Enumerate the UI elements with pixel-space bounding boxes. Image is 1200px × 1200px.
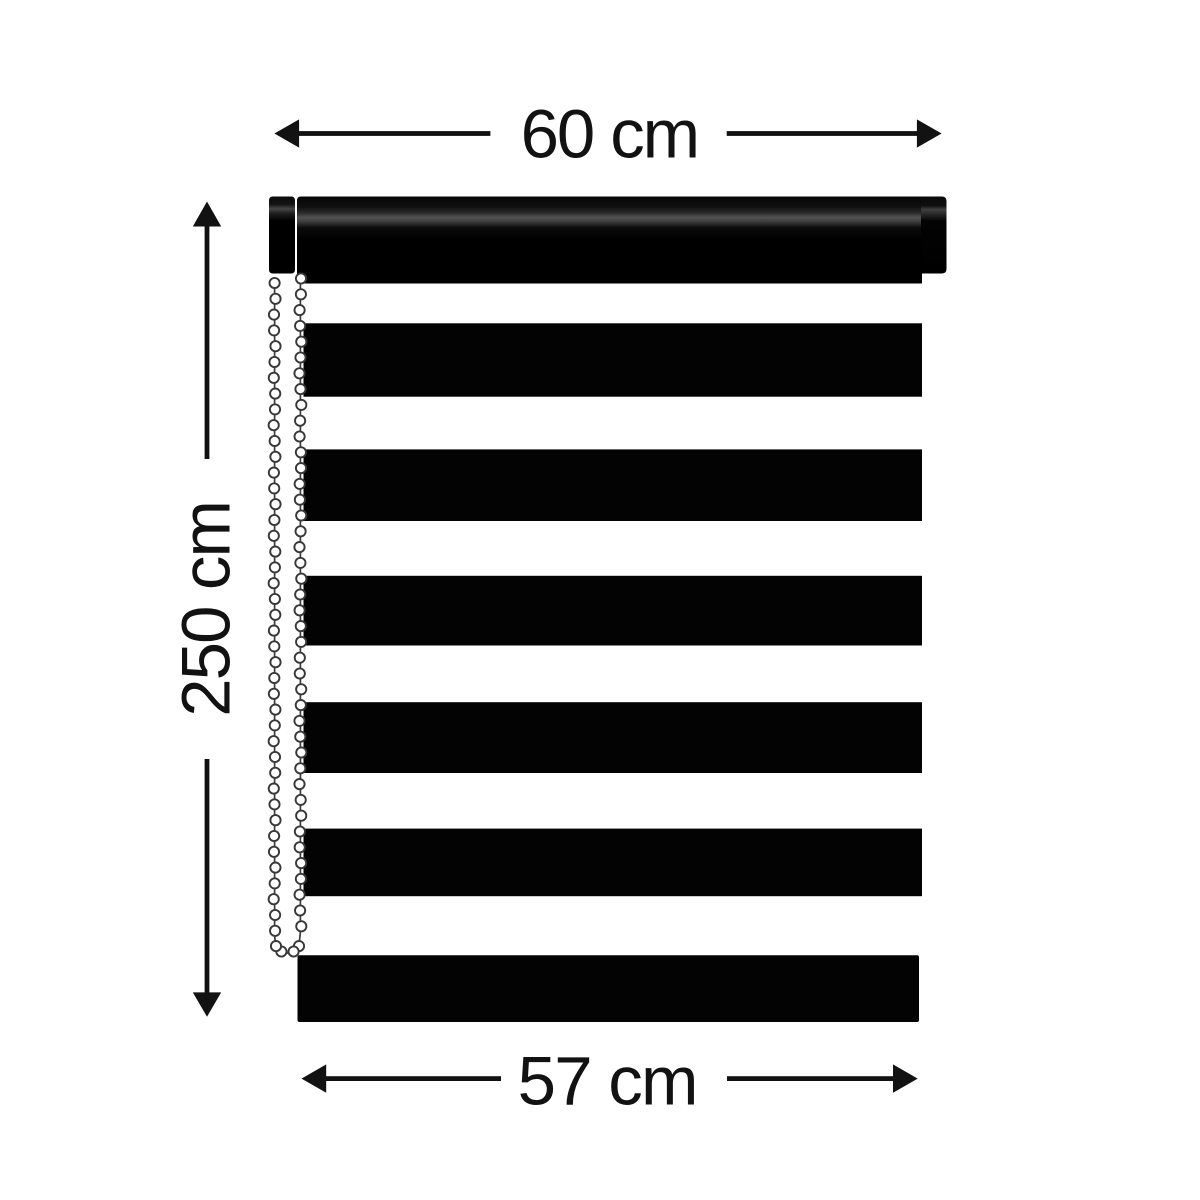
svg-text:60 cm: 60 cm (521, 96, 701, 173)
svg-text:250 cm: 250 cm (168, 500, 245, 717)
svg-text:57 cm: 57 cm (518, 1043, 699, 1120)
